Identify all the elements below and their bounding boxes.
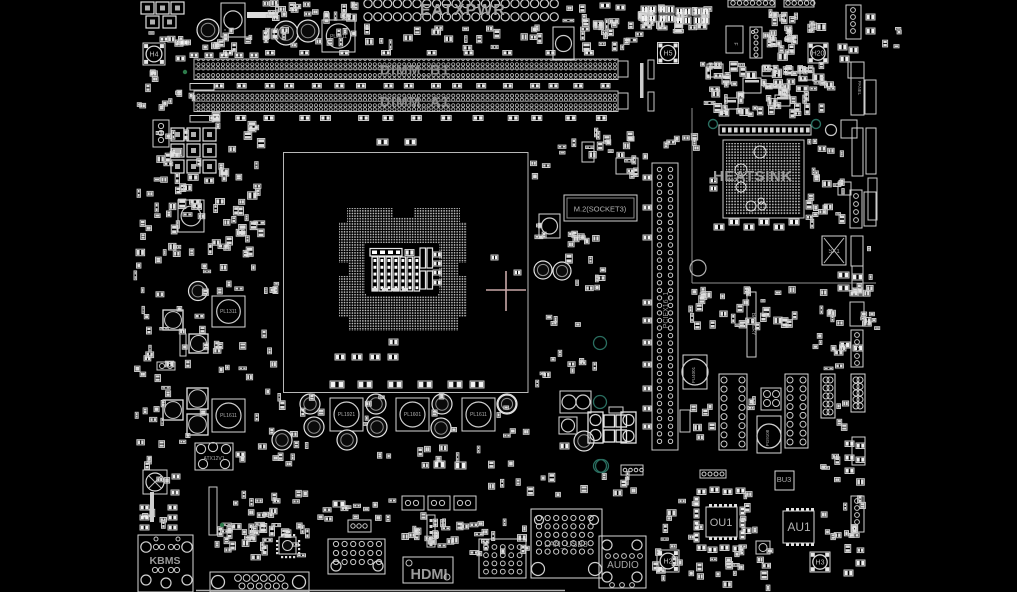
svg-text:PCIEX16_1: PCIEX16_1	[663, 292, 670, 329]
svg-text:HDMI: HDMI	[410, 567, 447, 583]
svg-text:F: F	[732, 42, 738, 45]
svg-text:HEATSINK: HEATSINK	[713, 168, 793, 185]
svg-text:BU3: BU3	[777, 475, 792, 484]
svg-text:AUDIO: AUDIO	[607, 560, 639, 571]
svg-text:AU1: AU1	[787, 520, 811, 534]
svg-text:PL1611: PL1611	[220, 413, 237, 419]
svg-text:PANEL: PANEL	[857, 81, 862, 96]
svg-text:H3: H3	[816, 560, 825, 567]
svg-text:BATTERY: BATTERY	[750, 313, 756, 336]
svg-text:OU1: OU1	[710, 517, 733, 529]
svg-text:PL1921: PL1921	[338, 412, 355, 418]
svg-text:PL1611: PL1611	[470, 412, 487, 418]
svg-text:ATX12V1: ATX12V1	[203, 456, 224, 462]
svg-text:H5: H5	[664, 51, 673, 58]
svg-text:PG9108: PG9108	[765, 429, 770, 446]
svg-text:DIMM_B1: DIMM_B1	[380, 62, 450, 78]
svg-text:DIMM_A1: DIMM_A1	[380, 94, 450, 110]
svg-text:PU4001: PU4001	[691, 366, 696, 383]
svg-text:EATXPWR: EATXPWR	[420, 2, 506, 19]
svg-text:H4: H4	[150, 52, 159, 59]
svg-text:PL1311: PL1311	[220, 309, 237, 315]
svg-text:M.2(SOCKET3): M.2(SOCKET3)	[574, 205, 627, 214]
svg-text:H20: H20	[812, 51, 825, 58]
svg-text:H2: H2	[664, 559, 673, 566]
svg-text:PL1601: PL1601	[404, 412, 421, 418]
svg-text:LAN_USB3: LAN_USB3	[544, 539, 588, 549]
svg-text:KBMS: KBMS	[150, 555, 181, 567]
svg-text:SX1: SX1	[828, 249, 840, 255]
